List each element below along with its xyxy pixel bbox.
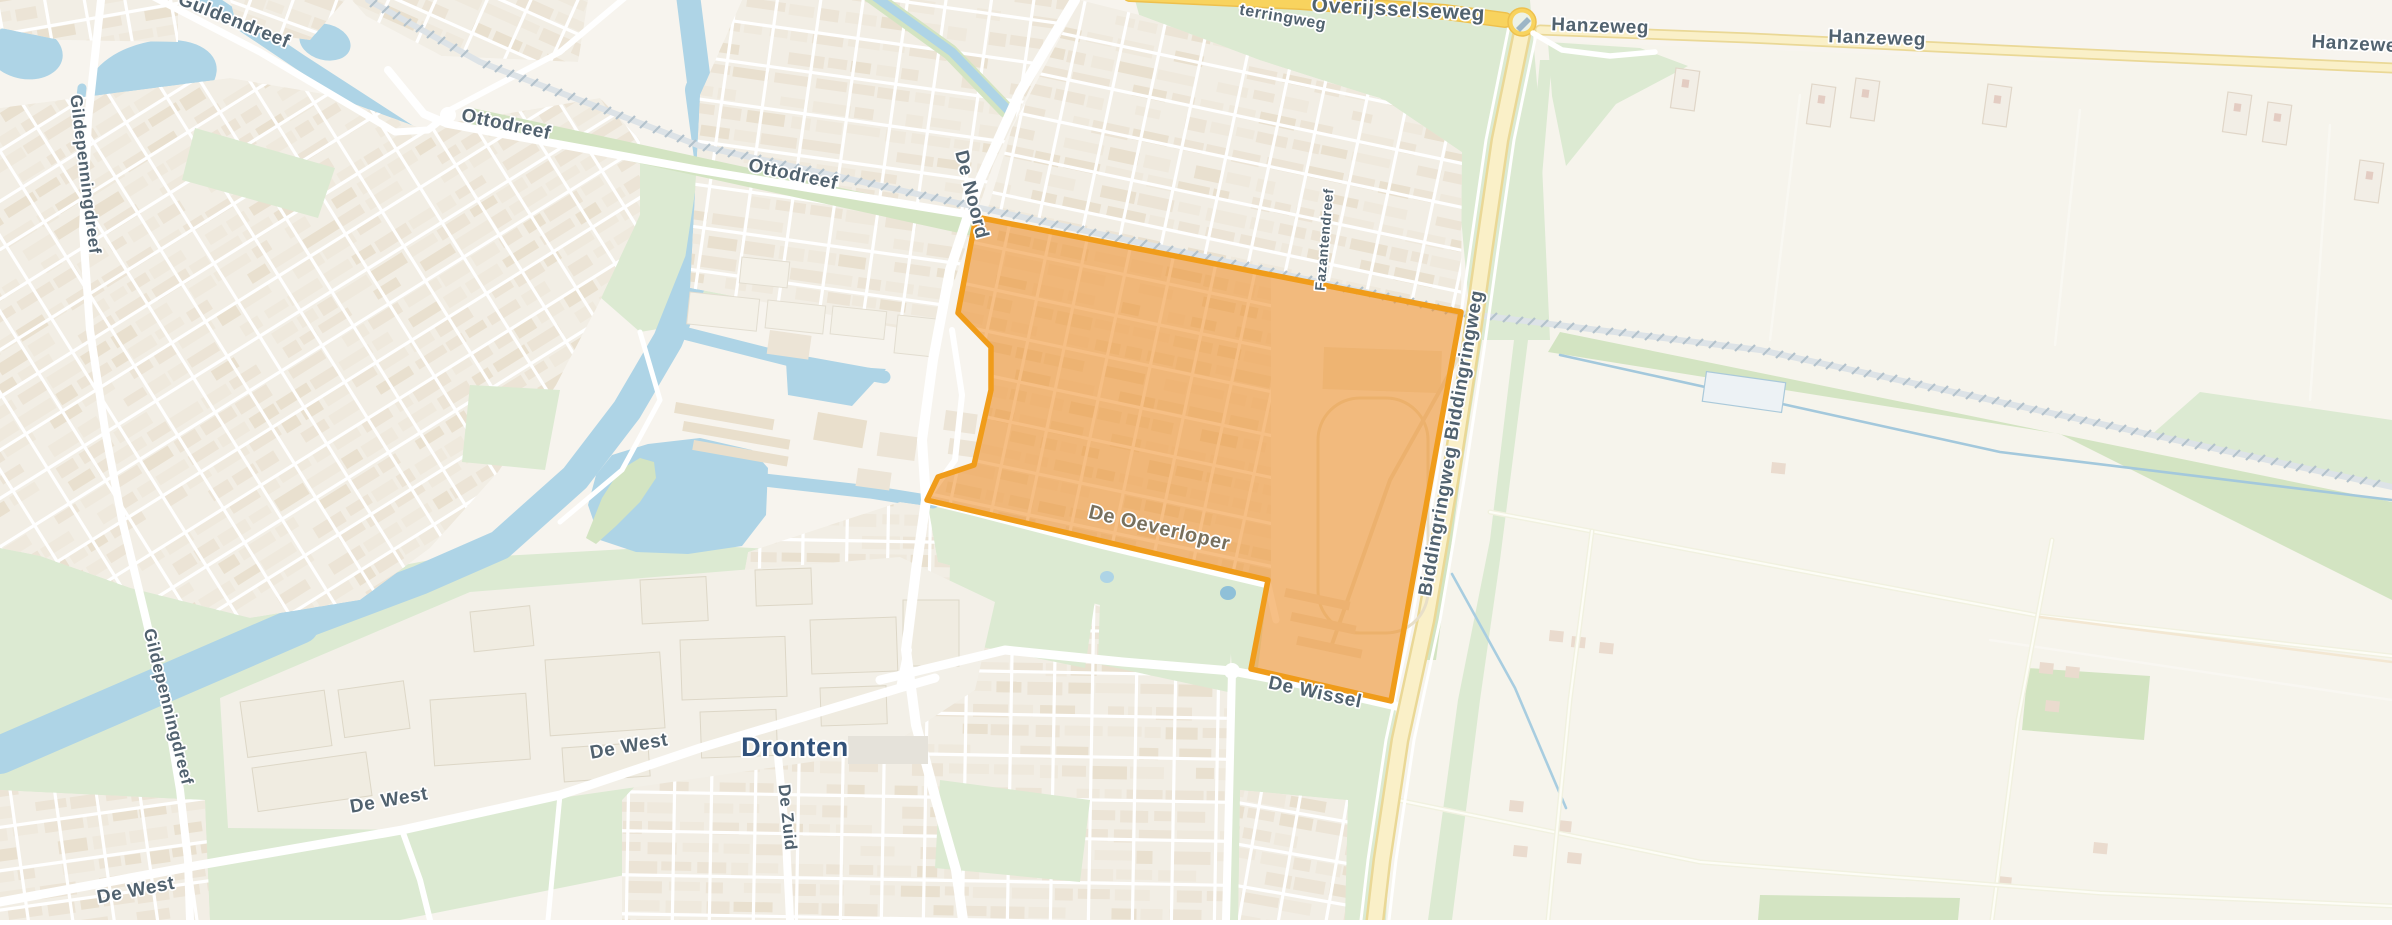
svg-text:Hanzeweg: Hanzeweg xyxy=(1551,14,1649,38)
svg-text:Dronten: Dronten xyxy=(741,732,849,762)
svg-text:Hanzeweg: Hanzeweg xyxy=(1828,26,1926,50)
